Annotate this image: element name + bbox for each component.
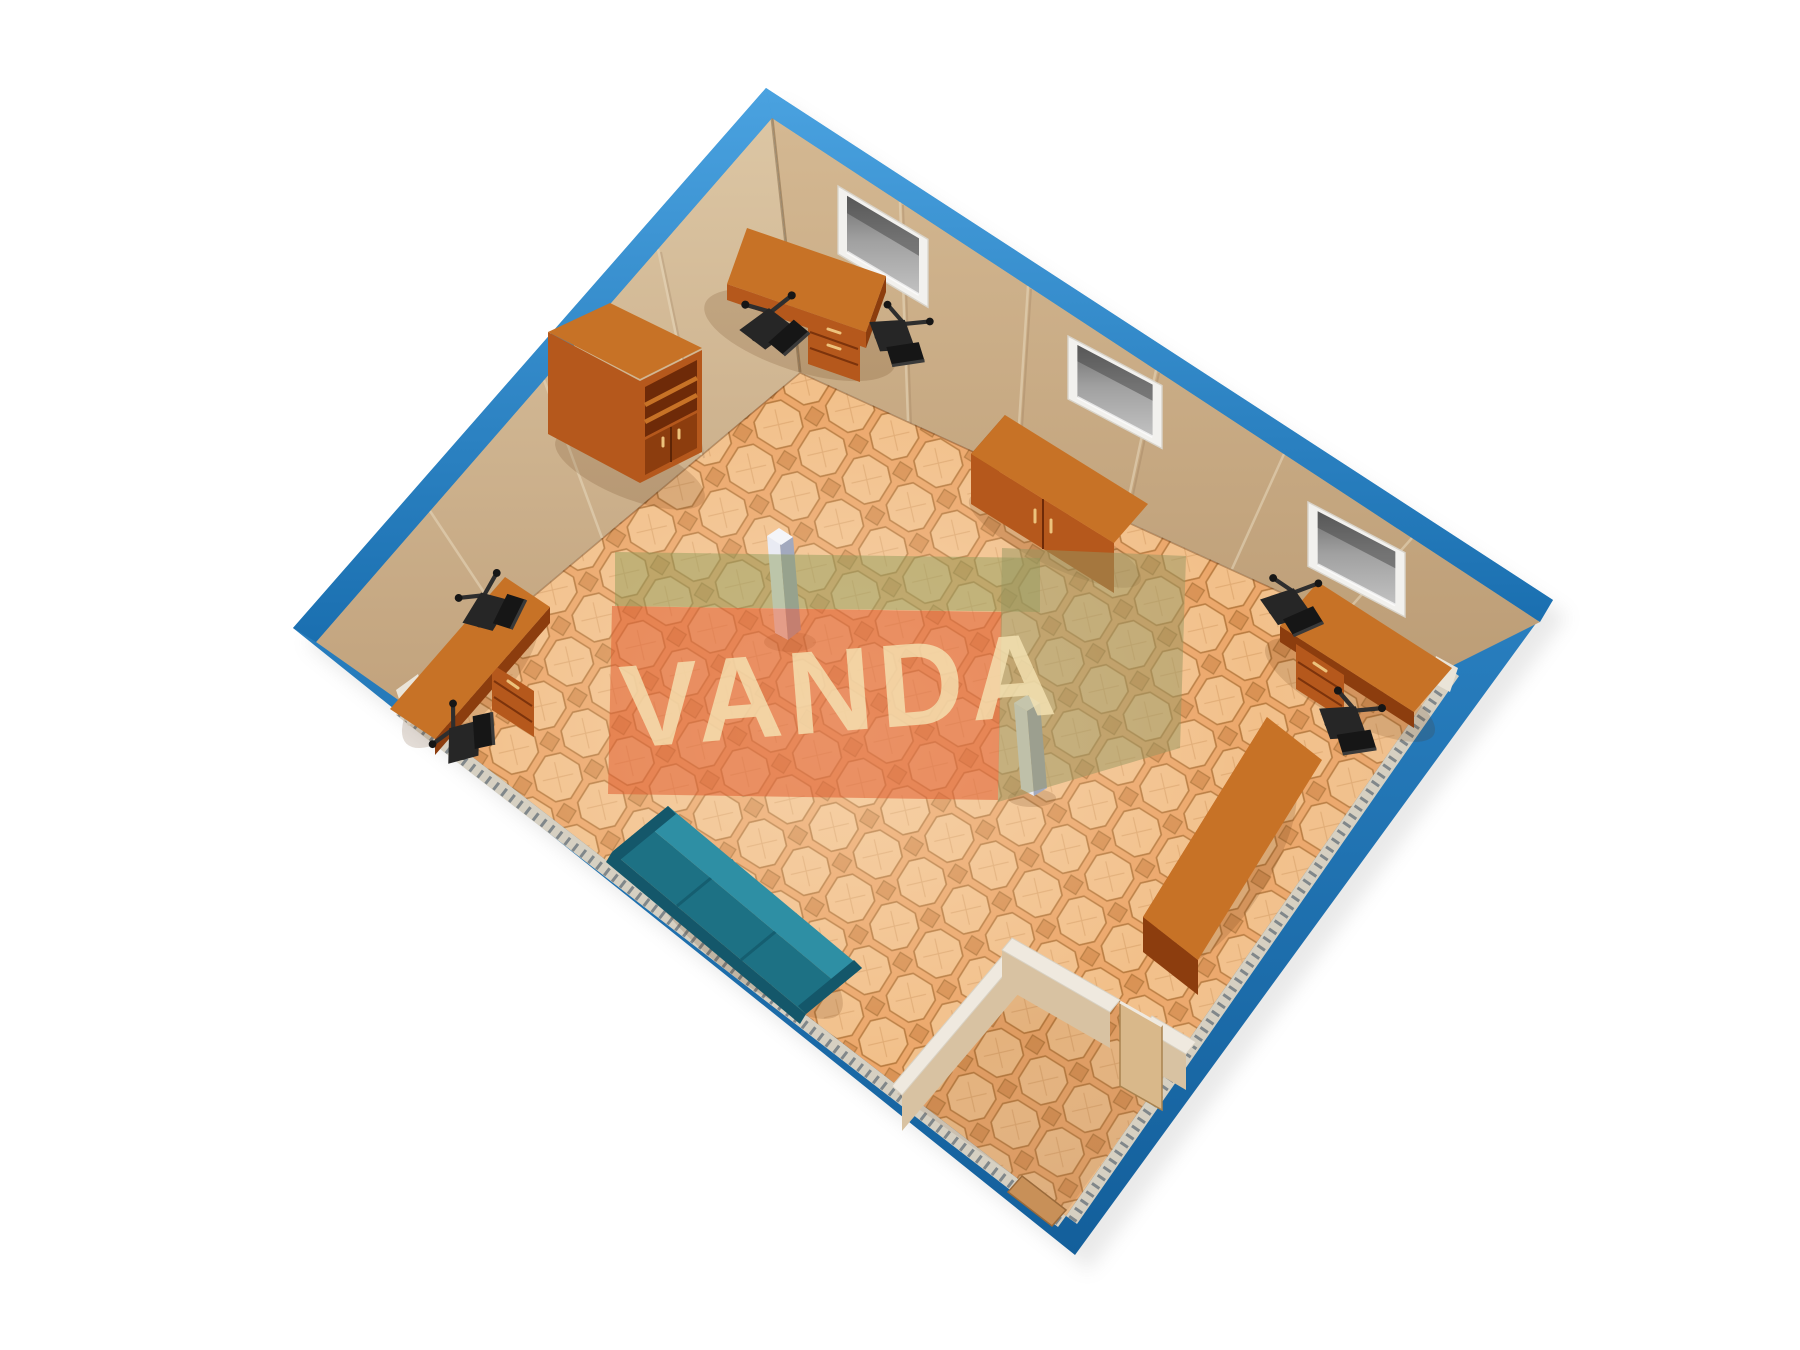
watermark-green-band bbox=[615, 552, 1040, 612]
floor-plan-render: VANDA bbox=[0, 0, 1800, 1350]
watermark: VANDA bbox=[608, 548, 1186, 802]
render-canvas: VANDA bbox=[0, 0, 1800, 1350]
